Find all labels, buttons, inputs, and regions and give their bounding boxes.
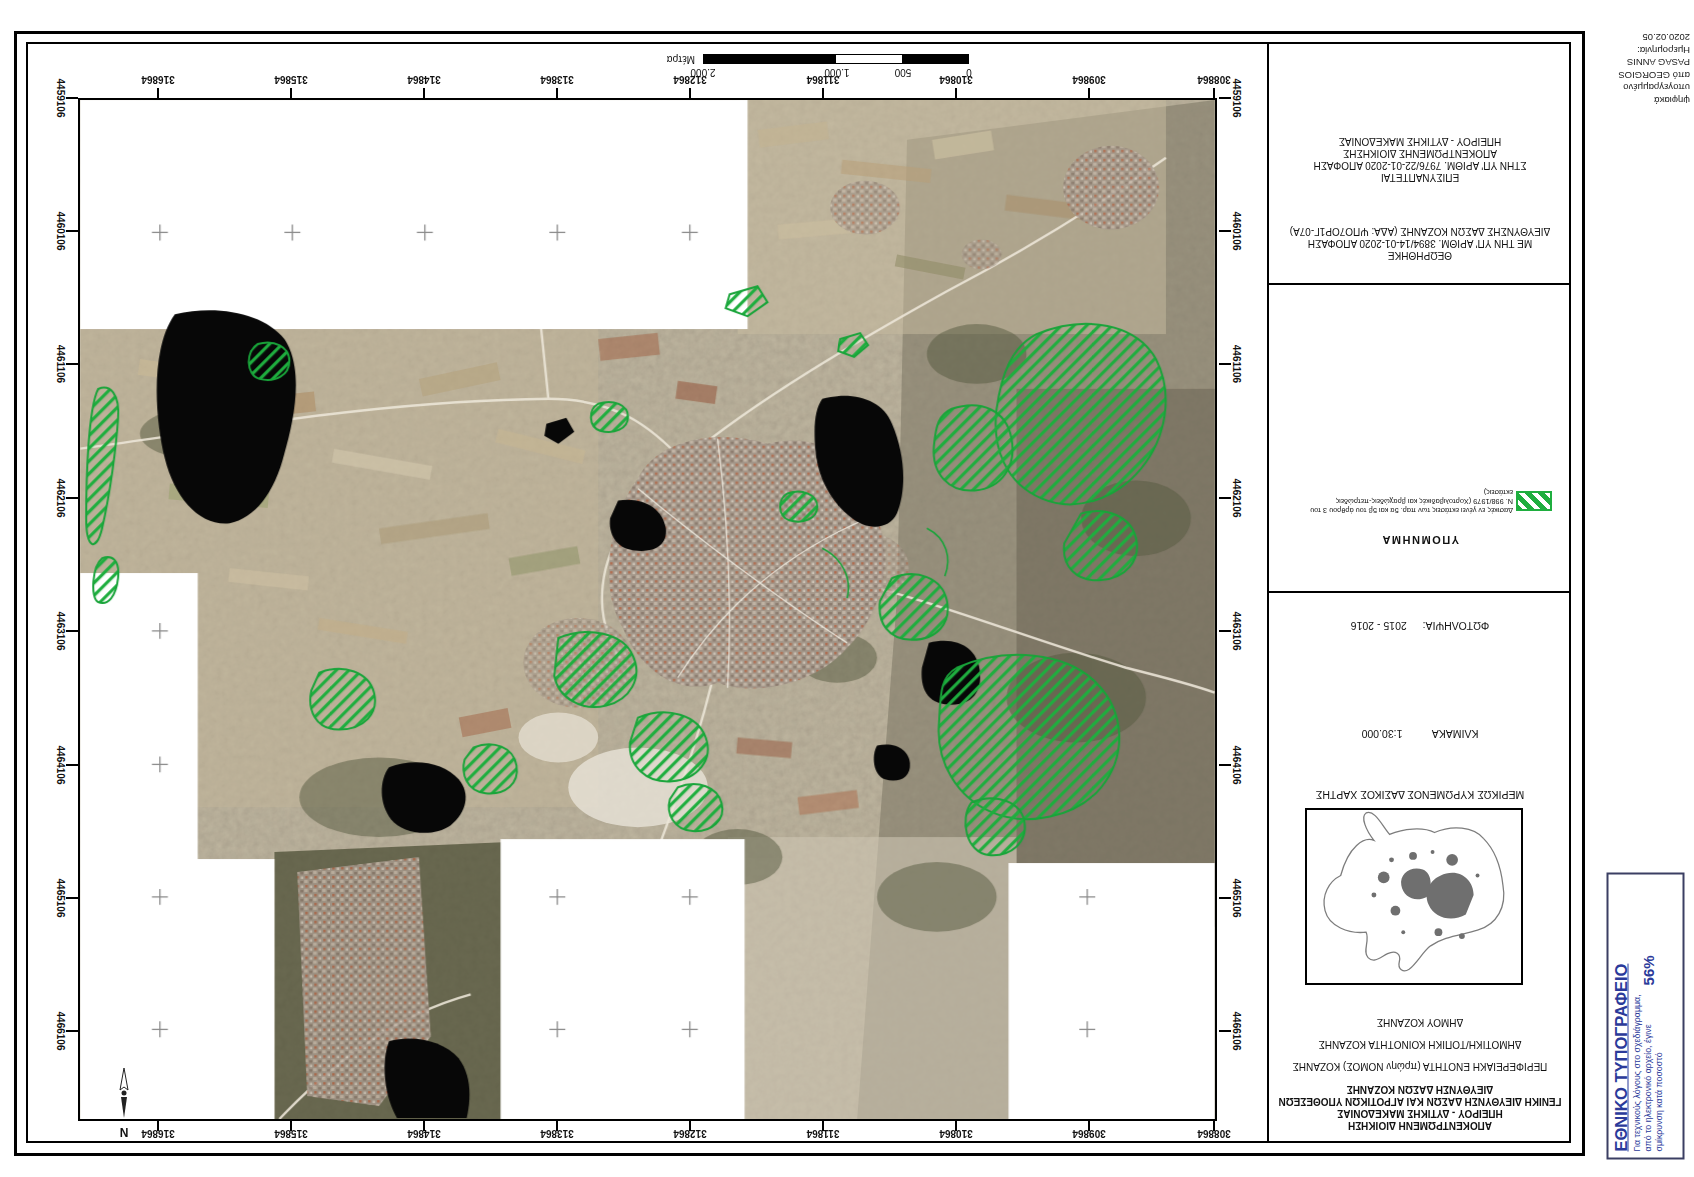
- easting-tick: [689, 88, 691, 98]
- northing-tick: [66, 764, 78, 766]
- easting-tick: [955, 88, 957, 98]
- northing-tick: [1219, 897, 1231, 899]
- org-line: ΓΕΝΙΚΗ ΔΙΕΥΘΥΝΣΗ ΔΑΣΩΝ ΚΑΙ ΑΓΡΟΤΙΚΩΝ ΥΠΟ…: [1269, 1096, 1571, 1107]
- attached-line: ΗΠΕΙΡΟΥ - ΔΥΤΙΚΗΣ ΜΑΚΕΔΟΝΙΑΣ: [1269, 136, 1571, 147]
- org-line: ΑΠΟΚΕΝΤΡΩΜΕΝΗ ΔΙΟΙΚΗΣΗ: [1269, 1120, 1571, 1131]
- northing-label: 4464106: [1230, 739, 1242, 791]
- attached-title: ΕΠΙΣΥΝΑΠΤΕΤΑΙ: [1269, 172, 1571, 183]
- northing-tick: [66, 897, 78, 899]
- digital-signature: ψηφιακά υπογεγραμμένο από GEORGIOS PASAG…: [1586, 0, 1692, 106]
- legend-entry-text: Δασικές εν γένει εκτάσεις των παρ. 5α κα…: [1275, 488, 1513, 515]
- easting-label: 314864: [398, 73, 450, 85]
- signature-line: PASAG ANNIS: [1586, 56, 1690, 69]
- signature-line: ψηφιακά: [1586, 93, 1690, 106]
- stamp-line: σμίκρυνση κατά ποσοστό: [1654, 994, 1665, 1151]
- photo-value: 2015 - 2016: [1351, 620, 1407, 632]
- easting-tick: [157, 88, 159, 98]
- attached-line: ΑΠΟΚΕΝΤΡΩΜΕΝΗΣ ΔΙΟΙΚΗΣΗΣ: [1269, 148, 1571, 159]
- signature-line: 2020.02.05: [1586, 30, 1690, 43]
- northing-tick: [1219, 1030, 1231, 1032]
- northing-tick: [66, 230, 78, 232]
- northing-label: 4465106: [54, 872, 66, 924]
- easting-tick: [822, 88, 824, 98]
- title-panel: ΑΠΟΚΕΝΤΡΩΜΕΝΗ ΔΙΟΙΚΗΣΗ ΗΠΕΙΡΟΥ - ΔΥΤΙΚΗΣ…: [1267, 42, 1571, 1143]
- northing-label: 4461106: [54, 338, 66, 390]
- approved-title: ΘΕΩΡΗΘΗΚΕ: [1269, 250, 1571, 261]
- legend-line: εκτάσεις): [1275, 488, 1513, 497]
- inset-caption: ΜΕΡΙΚΩΣ ΚΥΡΩΜΕΝΟΣ ΔΑΣΙΚΟΣ ΧΑΡΤΗΣ: [1269, 789, 1571, 801]
- northing-label: 4460106: [1230, 205, 1242, 257]
- northing-tick: [66, 97, 78, 99]
- northing-tick: [66, 497, 78, 499]
- northing-label: 4465106: [1230, 872, 1242, 924]
- scale-value: 1:30.000: [1362, 728, 1403, 740]
- northing-tick: [1219, 363, 1231, 365]
- panel-divider: [1269, 283, 1571, 285]
- panel-divider: [1269, 591, 1571, 593]
- stamp-line: Για τεχνικούς λόγους στο σχεδιάγραμμα,: [1632, 994, 1643, 1151]
- nodata-bottom-right: [1009, 863, 1215, 1119]
- stamp-percent: 56%: [1640, 955, 1657, 985]
- easting-label: 316864: [132, 73, 184, 85]
- scale-bar-label: 500: [883, 67, 923, 78]
- scale-bar-unit: Μέτρα: [667, 54, 695, 65]
- org-line: ΔΙΕΥΘΥΝΣΗ ΔΑΣΩΝ ΚΟΖΑΝΗΣ: [1269, 1084, 1571, 1095]
- northing-tick: [66, 363, 78, 365]
- nodata-top-left: [80, 100, 747, 329]
- attached-line: ΣΤΗΝ ΥΠ' ΑΡΙΘΜ. 7976/22-01-2020 ΑΠΟΦΑΣΗ: [1269, 160, 1571, 171]
- easting-tick: [157, 1121, 159, 1131]
- northing-tick: [1219, 630, 1231, 632]
- signature-line: υπογεγραμμένο: [1586, 81, 1690, 94]
- easting-label: 313864: [531, 73, 583, 85]
- northing-tick: [1219, 230, 1231, 232]
- legend-swatch-forest: [1516, 491, 1552, 511]
- northing-label: 4459106: [1230, 72, 1242, 124]
- easting-tick: [556, 1121, 558, 1131]
- forest-map-sheet: 3168643168643158643158643148643148643138…: [0, 0, 1694, 1177]
- northing-label: 4459106: [54, 72, 66, 124]
- approved-line: ΜΕ ΤΗΝ ΥΠ' ΑΡΙΘΜ. 3894/14-01-2020 ΑΠΟΦΑΣ…: [1269, 238, 1571, 249]
- northing-tick: [1219, 497, 1231, 499]
- scale-bar-segments: [703, 54, 969, 64]
- northing-label: 4464106: [54, 739, 66, 791]
- scale-bar-label: 0: [949, 67, 989, 78]
- map-frame: [78, 98, 1217, 1121]
- northing-label: 4463106: [1230, 605, 1242, 657]
- municipality: ΔΗΜΟΥ ΚΟΖΑΝΗΣ: [1269, 1017, 1571, 1028]
- easting-tick: [423, 1121, 425, 1131]
- easting-tick: [290, 1121, 292, 1131]
- easting-tick: [1088, 88, 1090, 98]
- northing-label: 4462106: [54, 472, 66, 524]
- scale-bar-label: 1.000: [817, 67, 857, 78]
- legend-line: Δασικές εν γένει εκτάσεις των παρ. 5α κα…: [1275, 506, 1513, 515]
- stamp-line: από το ηλεκτρονικό αρχείο, έγινε: [1643, 994, 1654, 1151]
- legend-line: Ν. 998/1979 (Χορτολιβαδικές και βραχώδει…: [1275, 497, 1513, 506]
- inset-map: [1305, 808, 1523, 985]
- approved-line: ΔΙΕΥΘΥΝΣΗΣ ΔΑΣΩΝ ΚΟΖΑΝΗΣ (ΑΔΑ: ΨΠΟ7ΟΡ1Γ-…: [1269, 226, 1571, 237]
- signature-line: Ημερομηνία:: [1586, 43, 1690, 56]
- northing-label: 4463106: [54, 605, 66, 657]
- stamp-title: ΕΘΝΙΚΟ ΤΥΠΟΓΡΑΦΕΙΟ: [1612, 881, 1631, 1152]
- easting-label: 309864: [1063, 73, 1115, 85]
- north-arrow-icon: N: [104, 1066, 144, 1140]
- scale-bar: Μέτρα 05001.0002.000: [645, 48, 975, 78]
- village-northeast: [1063, 146, 1159, 230]
- community: ΔΗΜΟΤΙΚΗ/ΤΟΠΙΚΗ ΚΟΙΝΟΤΗΤΑ ΚΟΖΑΝΗΣ: [1269, 1039, 1571, 1050]
- easting-tick: [290, 88, 292, 98]
- printing-office-stamp: ΕΘΝΙΚΟ ΤΥΠΟΓΡΑΦΕΙΟ Για τεχνικούς λόγους …: [1607, 872, 1685, 1159]
- scale-label: ΚΛΙΜΑΚΑ: [1432, 728, 1478, 740]
- aerial-imagery: [80, 100, 1215, 1119]
- northing-label: 4461106: [1230, 338, 1242, 390]
- northing-label: 4462106: [1230, 472, 1242, 524]
- easting-tick: [1088, 1121, 1090, 1131]
- signature-line: από GEORGIOS: [1586, 68, 1690, 81]
- photo-label: ΦΩΤΟΛΗΨΙΑ:: [1423, 620, 1490, 632]
- region-unit: ΠΕΡΙΦΕΡΕΙΑΚΗ ΕΝΟΤΗΤΑ (πρώην ΝΟΜΟΣ) ΚΟΖΑΝ…: [1269, 1061, 1571, 1072]
- northing-tick: [1219, 97, 1231, 99]
- northing-label: 4466106: [54, 1005, 66, 1057]
- northing-tick: [66, 630, 78, 632]
- easting-tick: [423, 88, 425, 98]
- easting-tick: [689, 1121, 691, 1131]
- easting-tick: [955, 1121, 957, 1131]
- northing-tick: [66, 1030, 78, 1032]
- northing-label: 4460106: [54, 205, 66, 257]
- easting-tick: [556, 88, 558, 98]
- legend-title: ΥΠΟΜΝΗΜΑ: [1269, 534, 1571, 546]
- easting-tick: [822, 1121, 824, 1131]
- northing-label: 4466106: [1230, 1005, 1242, 1057]
- nodata-bottom-center: [501, 839, 745, 1119]
- easting-tick: [1213, 88, 1215, 98]
- north-label: N: [120, 1126, 129, 1140]
- northing-tick: [1219, 764, 1231, 766]
- scale-bar-label: 2.000: [683, 67, 723, 78]
- easting-tick: [1213, 1121, 1215, 1131]
- easting-label: 315864: [265, 73, 317, 85]
- org-line: ΗΠΕΙΡΟΥ - ΔΥΤΙΚΗΣ ΜΑΚΕΔΟΝΙΑΣ: [1269, 1108, 1571, 1119]
